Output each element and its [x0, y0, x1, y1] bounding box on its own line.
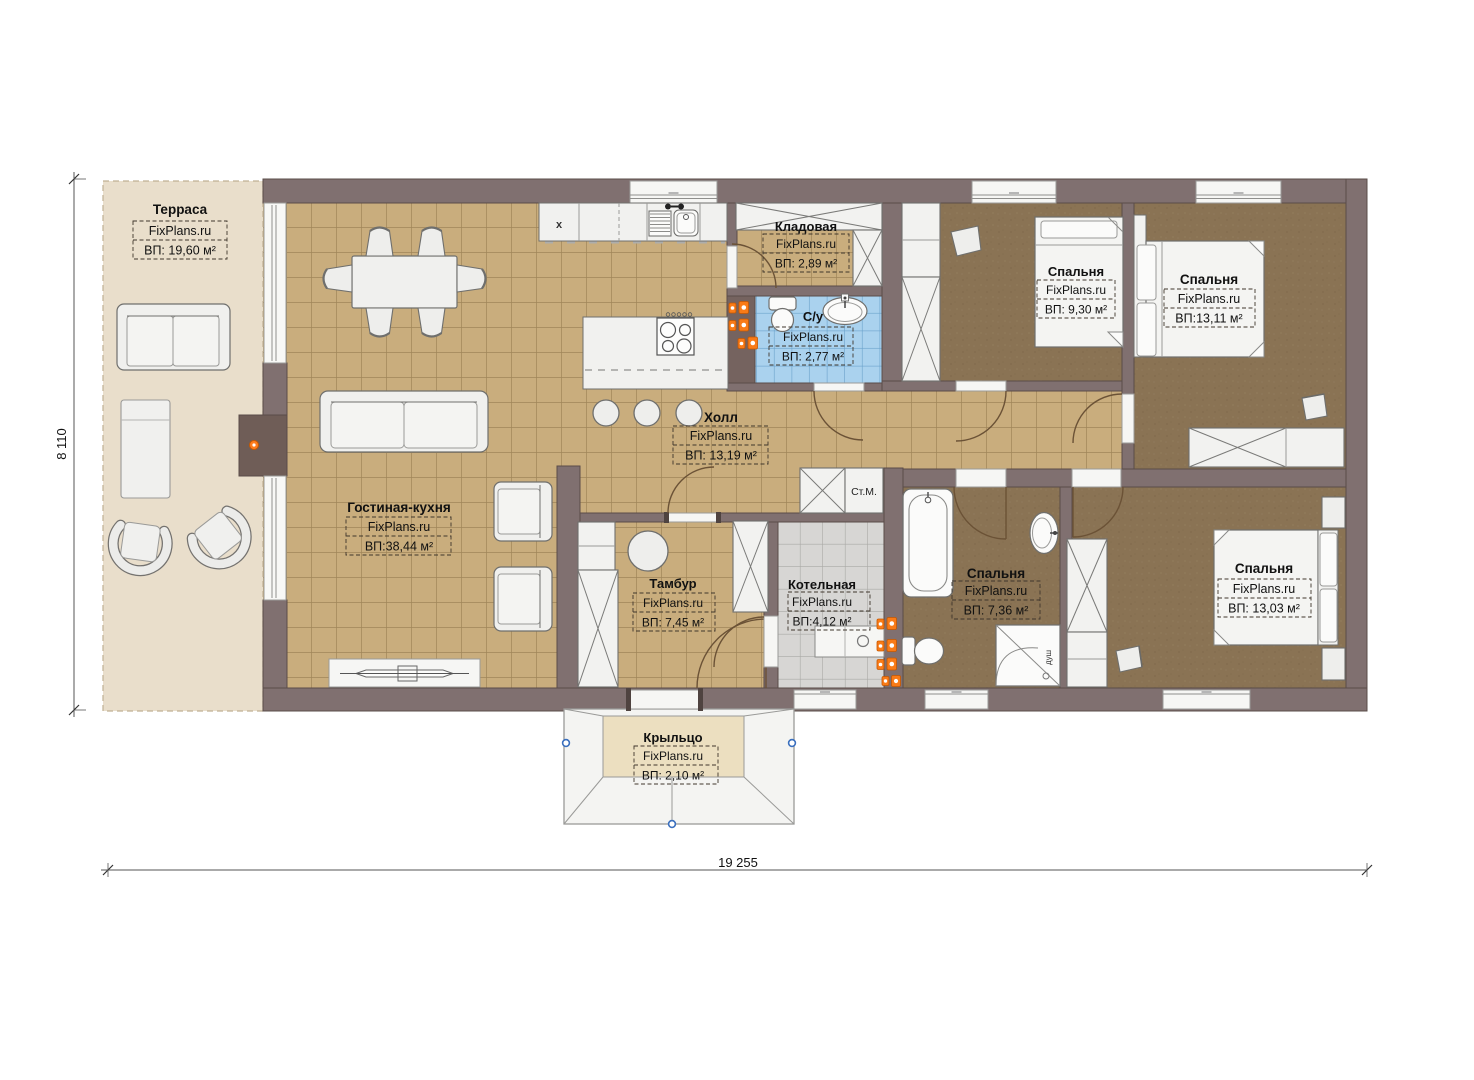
svg-text:FixPlans.ru: FixPlans.ru: [149, 224, 212, 238]
svg-text:ВП: 9,30 м²: ВП: 9,30 м²: [1045, 303, 1107, 317]
svg-text:Крыльцо: Крыльцо: [643, 730, 702, 745]
svg-text:FixPlans.ru: FixPlans.ru: [1233, 582, 1296, 596]
svg-text:Холл: Холл: [704, 410, 738, 425]
svg-text:С/у: С/у: [803, 309, 824, 324]
svg-text:ВП:13,11 м²: ВП:13,11 м²: [1175, 312, 1242, 326]
svg-text:Ст.М.: Ст.М.: [851, 486, 877, 498]
svg-text:ВП: 13,03 м²: ВП: 13,03 м²: [1228, 602, 1300, 616]
svg-text:FixPlans.ru: FixPlans.ru: [1046, 283, 1106, 297]
svg-text:Спальня: Спальня: [1180, 272, 1238, 287]
svg-text:ВП:4,12 м²: ВП:4,12 м²: [793, 615, 852, 629]
svg-text:ВП: 2,89 м²: ВП: 2,89 м²: [775, 257, 837, 271]
svg-text:FixPlans.ru: FixPlans.ru: [643, 749, 703, 763]
svg-text:ВП: 19,60 м²: ВП: 19,60 м²: [144, 244, 216, 258]
svg-text:Гостиная-кухня: Гостиная-кухня: [347, 500, 450, 515]
svg-text:Кладовая: Кладовая: [775, 219, 837, 234]
svg-text:FixPlans.ru: FixPlans.ru: [965, 584, 1028, 598]
svg-text:Котельная: Котельная: [788, 577, 856, 592]
svg-text:ВП: 2,10 м²: ВП: 2,10 м²: [642, 769, 704, 783]
svg-text:FixPlans.ru: FixPlans.ru: [792, 595, 852, 609]
svg-text:Спальня: Спальня: [967, 566, 1025, 581]
svg-text:Спальня: Спальня: [1048, 264, 1104, 279]
svg-text:Тамбур: Тамбур: [649, 576, 696, 591]
svg-text:душ: душ: [1044, 650, 1053, 665]
svg-text:19 255: 19 255: [718, 855, 758, 870]
svg-text:x: x: [556, 219, 563, 231]
svg-text:Спальня: Спальня: [1235, 561, 1293, 576]
svg-text:ВП: 2,77 м²: ВП: 2,77 м²: [782, 350, 844, 364]
svg-text:8 110: 8 110: [54, 428, 69, 460]
svg-text:FixPlans.ru: FixPlans.ru: [368, 520, 431, 534]
svg-text:FixPlans.ru: FixPlans.ru: [643, 596, 703, 610]
svg-text:ВП: 7,45 м²: ВП: 7,45 м²: [642, 616, 704, 630]
svg-text:FixPlans.ru: FixPlans.ru: [690, 429, 753, 443]
svg-text:FixPlans.ru: FixPlans.ru: [783, 330, 843, 344]
svg-text:ВП:38,44 м²: ВП:38,44 м²: [365, 540, 433, 554]
svg-text:Терраса: Терраса: [153, 202, 208, 217]
svg-text:ВП: 13,19 м²: ВП: 13,19 м²: [685, 449, 757, 463]
svg-text:FixPlans.ru: FixPlans.ru: [1178, 292, 1241, 306]
svg-text:FixPlans.ru: FixPlans.ru: [776, 237, 836, 251]
svg-text:ВП: 7,36 м²: ВП: 7,36 м²: [964, 604, 1029, 618]
